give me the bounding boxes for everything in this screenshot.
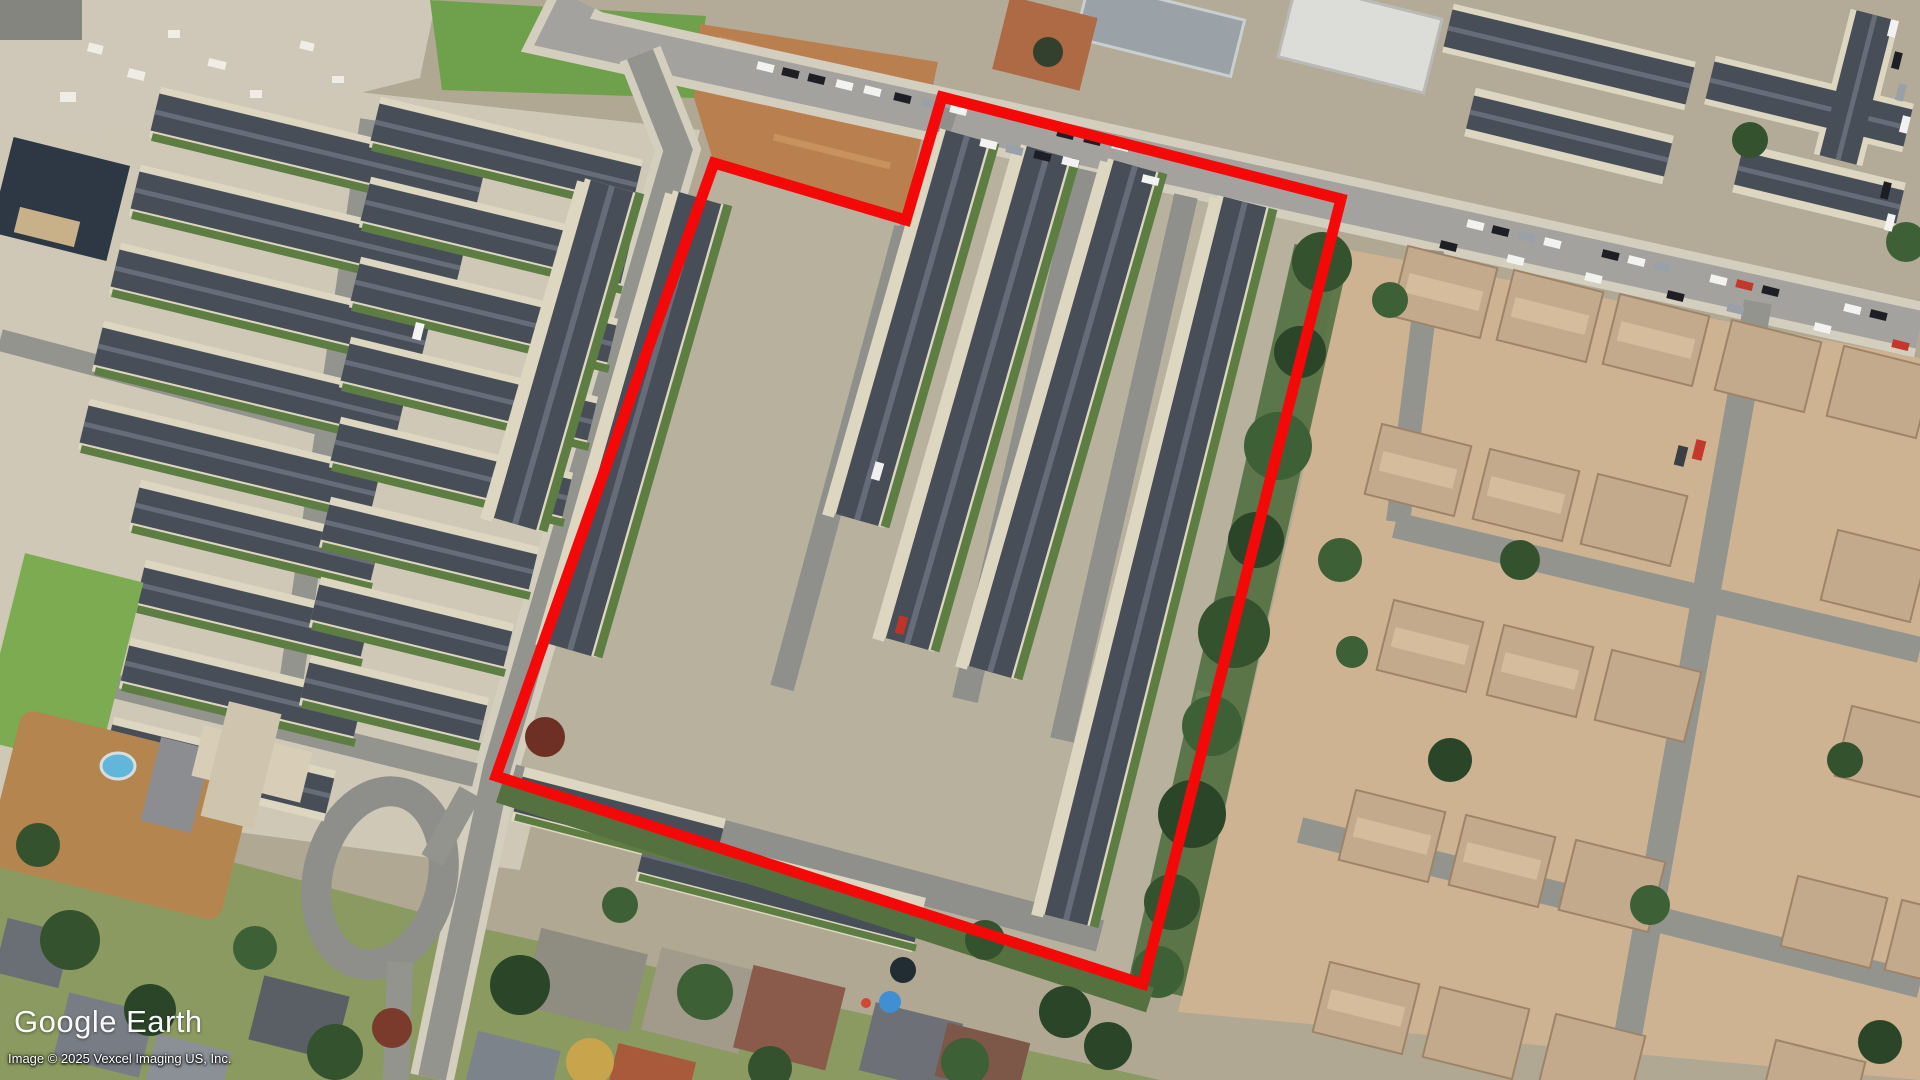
- aerial-imagery: [0, 0, 1920, 1080]
- google-earth-viewport[interactable]: Google Earth Image © 2025 Vexcel Imaging…: [0, 0, 1920, 1080]
- patio-umbrella: [861, 998, 871, 1008]
- copyright-text: Image © 2025 Vexcel Imaging US, Inc.: [8, 1051, 231, 1067]
- google-earth-logo: Google Earth: [14, 1006, 203, 1037]
- round-pool: [879, 991, 901, 1013]
- trampoline: [890, 957, 916, 983]
- swimming-pool: [101, 753, 135, 779]
